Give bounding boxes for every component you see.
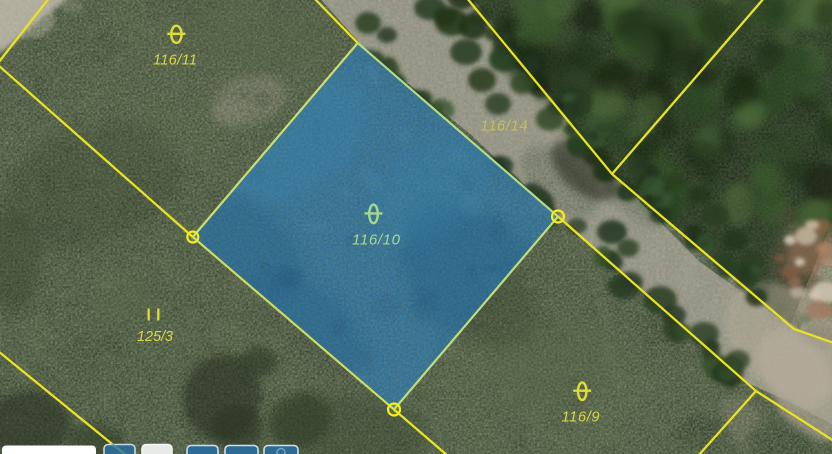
svg-text:116/11: 116/11: [153, 53, 197, 69]
svg-text:116/10: 116/10: [352, 232, 401, 249]
svg-text:116/14: 116/14: [481, 119, 528, 135]
svg-text:116/9: 116/9: [562, 410, 600, 426]
svg-text:125/3: 125/3: [137, 329, 173, 345]
